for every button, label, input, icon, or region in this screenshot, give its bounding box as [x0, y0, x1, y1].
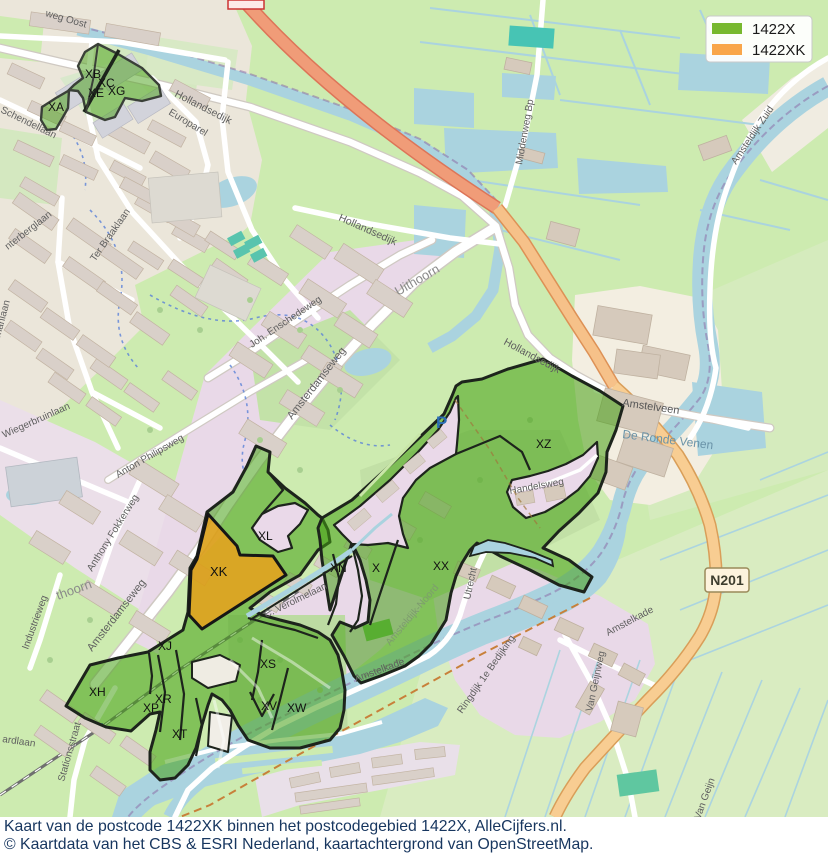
- svg-text:XN: XN: [330, 561, 347, 575]
- svg-text:X: X: [372, 561, 380, 575]
- svg-text:P: P: [436, 413, 447, 432]
- svg-text:XZ: XZ: [536, 437, 551, 451]
- svg-text:XK: XK: [210, 564, 228, 579]
- svg-text:N201: N201: [710, 572, 744, 588]
- svg-text:1422X: 1422X: [752, 21, 795, 38]
- svg-text:XR: XR: [155, 692, 172, 706]
- svg-text:XX: XX: [433, 559, 449, 573]
- svg-text:XE: XE: [88, 86, 104, 100]
- svg-text:XG: XG: [108, 84, 125, 98]
- svg-text:XS: XS: [260, 657, 276, 671]
- svg-text:XL: XL: [258, 529, 273, 543]
- svg-text:XT: XT: [172, 727, 188, 741]
- svg-text:XA: XA: [48, 100, 64, 114]
- svg-text:XW: XW: [287, 701, 307, 715]
- svg-text:XH: XH: [89, 685, 106, 699]
- svg-text:1422XK: 1422XK: [752, 42, 805, 59]
- svg-text:XJ: XJ: [158, 639, 172, 653]
- svg-text:XV: XV: [261, 699, 277, 713]
